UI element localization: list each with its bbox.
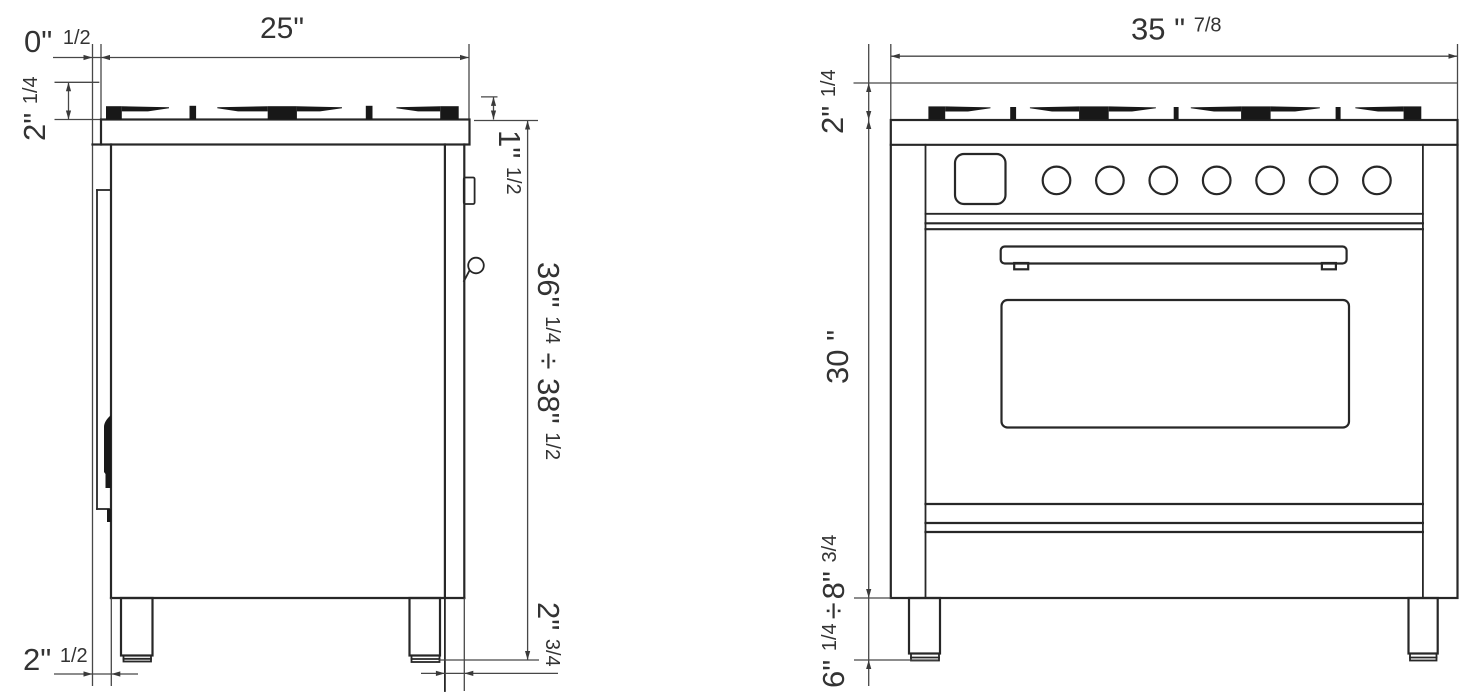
svg-text:36" 1/4 ÷ 38" 1/2: 36" 1/4 ÷ 38" 1/2 xyxy=(531,262,566,460)
svg-text:25": 25" xyxy=(260,12,304,45)
svg-text:30 ": 30 " xyxy=(820,330,855,384)
